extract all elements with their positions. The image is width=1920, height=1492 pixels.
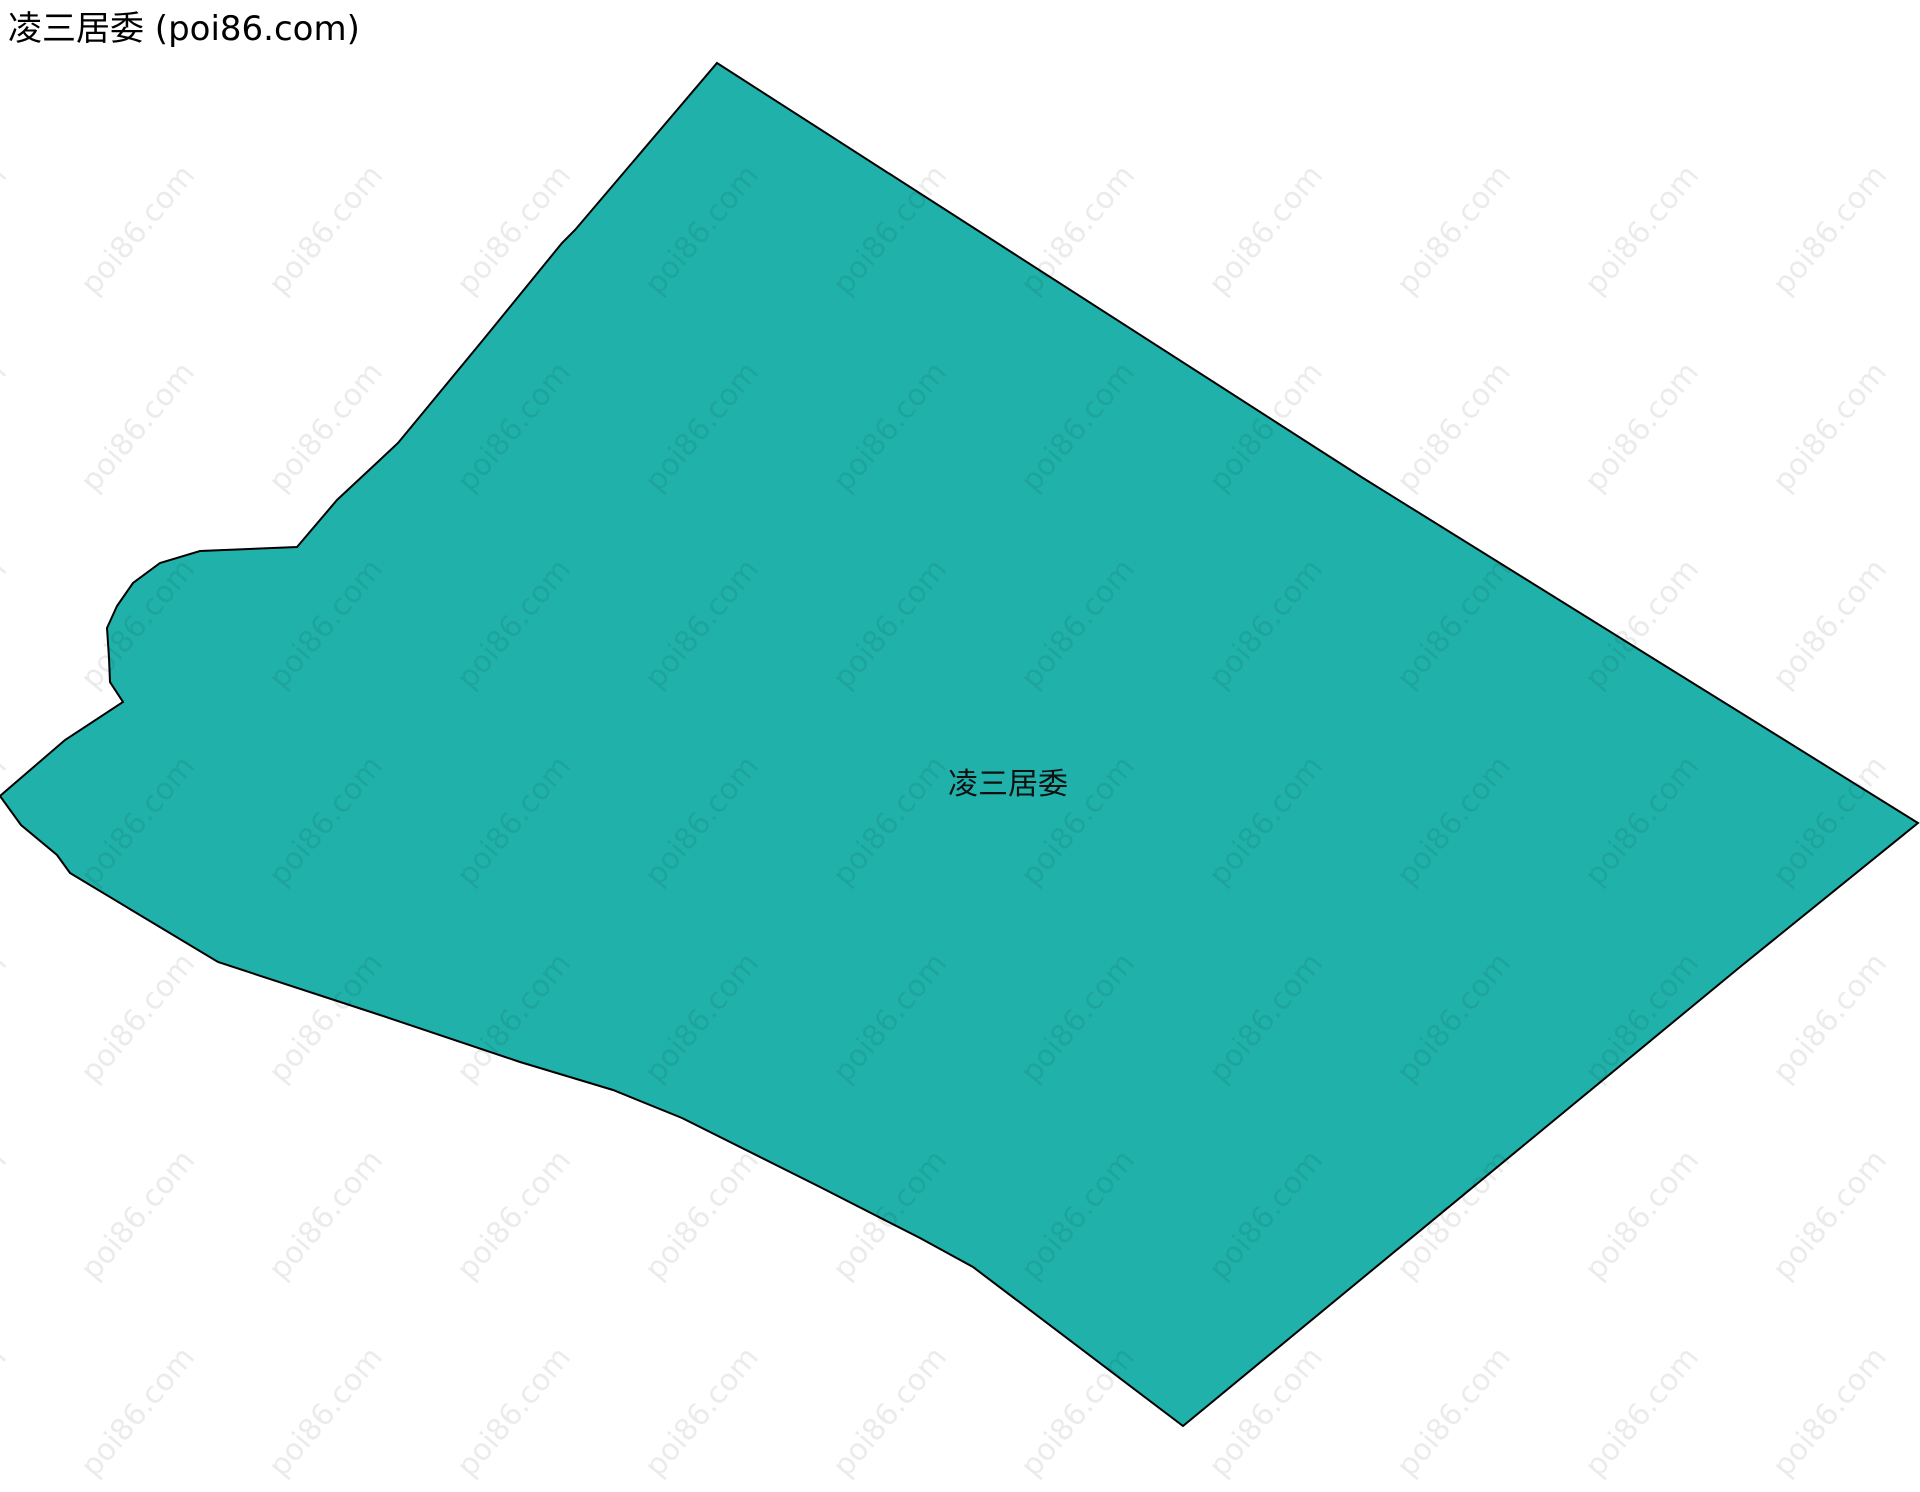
map-canvas: poi86.compoi86.compoi86.compoi86.compoi8…: [0, 0, 1920, 1492]
region-label: 凌三居委: [948, 759, 1068, 803]
page-title: 凌三居委 (poi86.com): [8, 8, 360, 51]
region-polygon-svg: [0, 0, 1920, 1492]
region-polygon: [0, 63, 1918, 1426]
